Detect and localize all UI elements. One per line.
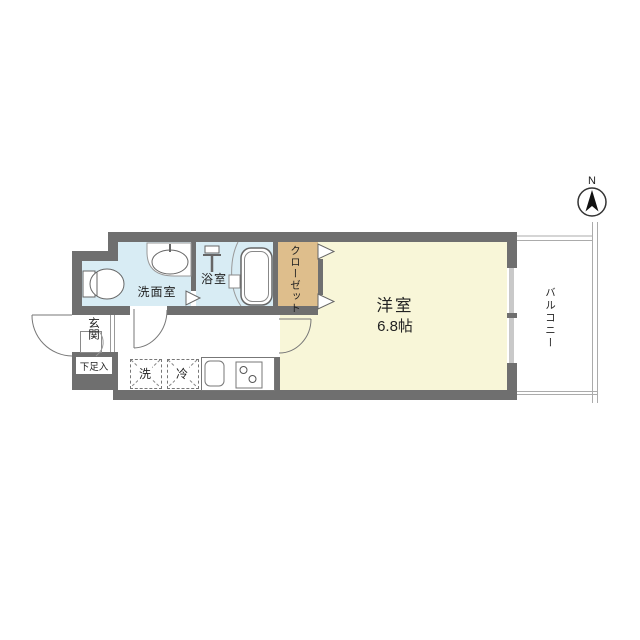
- washer-label: 洗: [130, 359, 160, 387]
- closet-door-marker-bottom: [318, 294, 334, 309]
- closet-door-marker-top: [318, 244, 334, 259]
- front-door-swing-arc: [32, 315, 72, 356]
- bath-floor-curve: [232, 242, 241, 306]
- compass-north-label: N: [584, 175, 600, 187]
- toilet-bowl: [90, 269, 124, 299]
- shower-head: [205, 246, 219, 253]
- kitchen-sink: [205, 361, 224, 386]
- closet-label: クローゼット: [287, 245, 303, 314]
- washer-label-text: 洗: [138, 365, 152, 382]
- window-lower: [509, 318, 514, 363]
- main-room-area-label: 6.8帖: [363, 316, 427, 334]
- shoe-storage-label: 下足入: [80, 359, 109, 373]
- entrance-label: 玄関: [85, 317, 100, 340]
- bathtub: [241, 248, 272, 305]
- main-room-label: 洋室: [363, 295, 427, 313]
- fridge-label: 冷: [167, 359, 197, 387]
- balcony-label: バルコニー: [542, 287, 558, 350]
- floorplan: N 洋室 6.8帖 バルコニー クローゼット 浴室 洗面室 玄関 下足入 洗 冷: [0, 0, 640, 640]
- shoe-storage-box: 下足入: [76, 357, 112, 374]
- fridge-label-text: 冷: [175, 365, 189, 382]
- basin-bowl: [152, 250, 188, 274]
- window-upper: [509, 268, 514, 313]
- main-room-door-swing-arc: [279, 319, 311, 353]
- bathroom-label: 浴室: [196, 271, 232, 285]
- stove: [236, 362, 262, 388]
- washroom-label: 洗面室: [123, 284, 191, 298]
- washroom-door-swing-arc: [134, 310, 167, 348]
